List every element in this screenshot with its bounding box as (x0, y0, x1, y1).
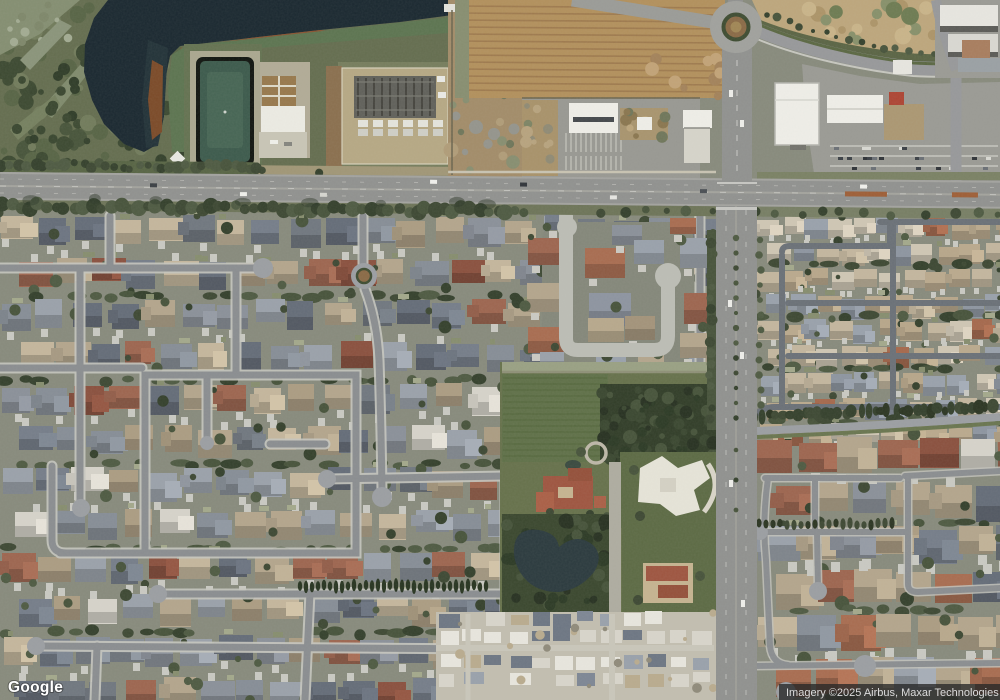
svg-text:Imagery ©2025 Airbus, Maxar Te: Imagery ©2025 Airbus, Maxar Technologies (786, 687, 999, 699)
svg-text:Google: Google (8, 679, 63, 696)
